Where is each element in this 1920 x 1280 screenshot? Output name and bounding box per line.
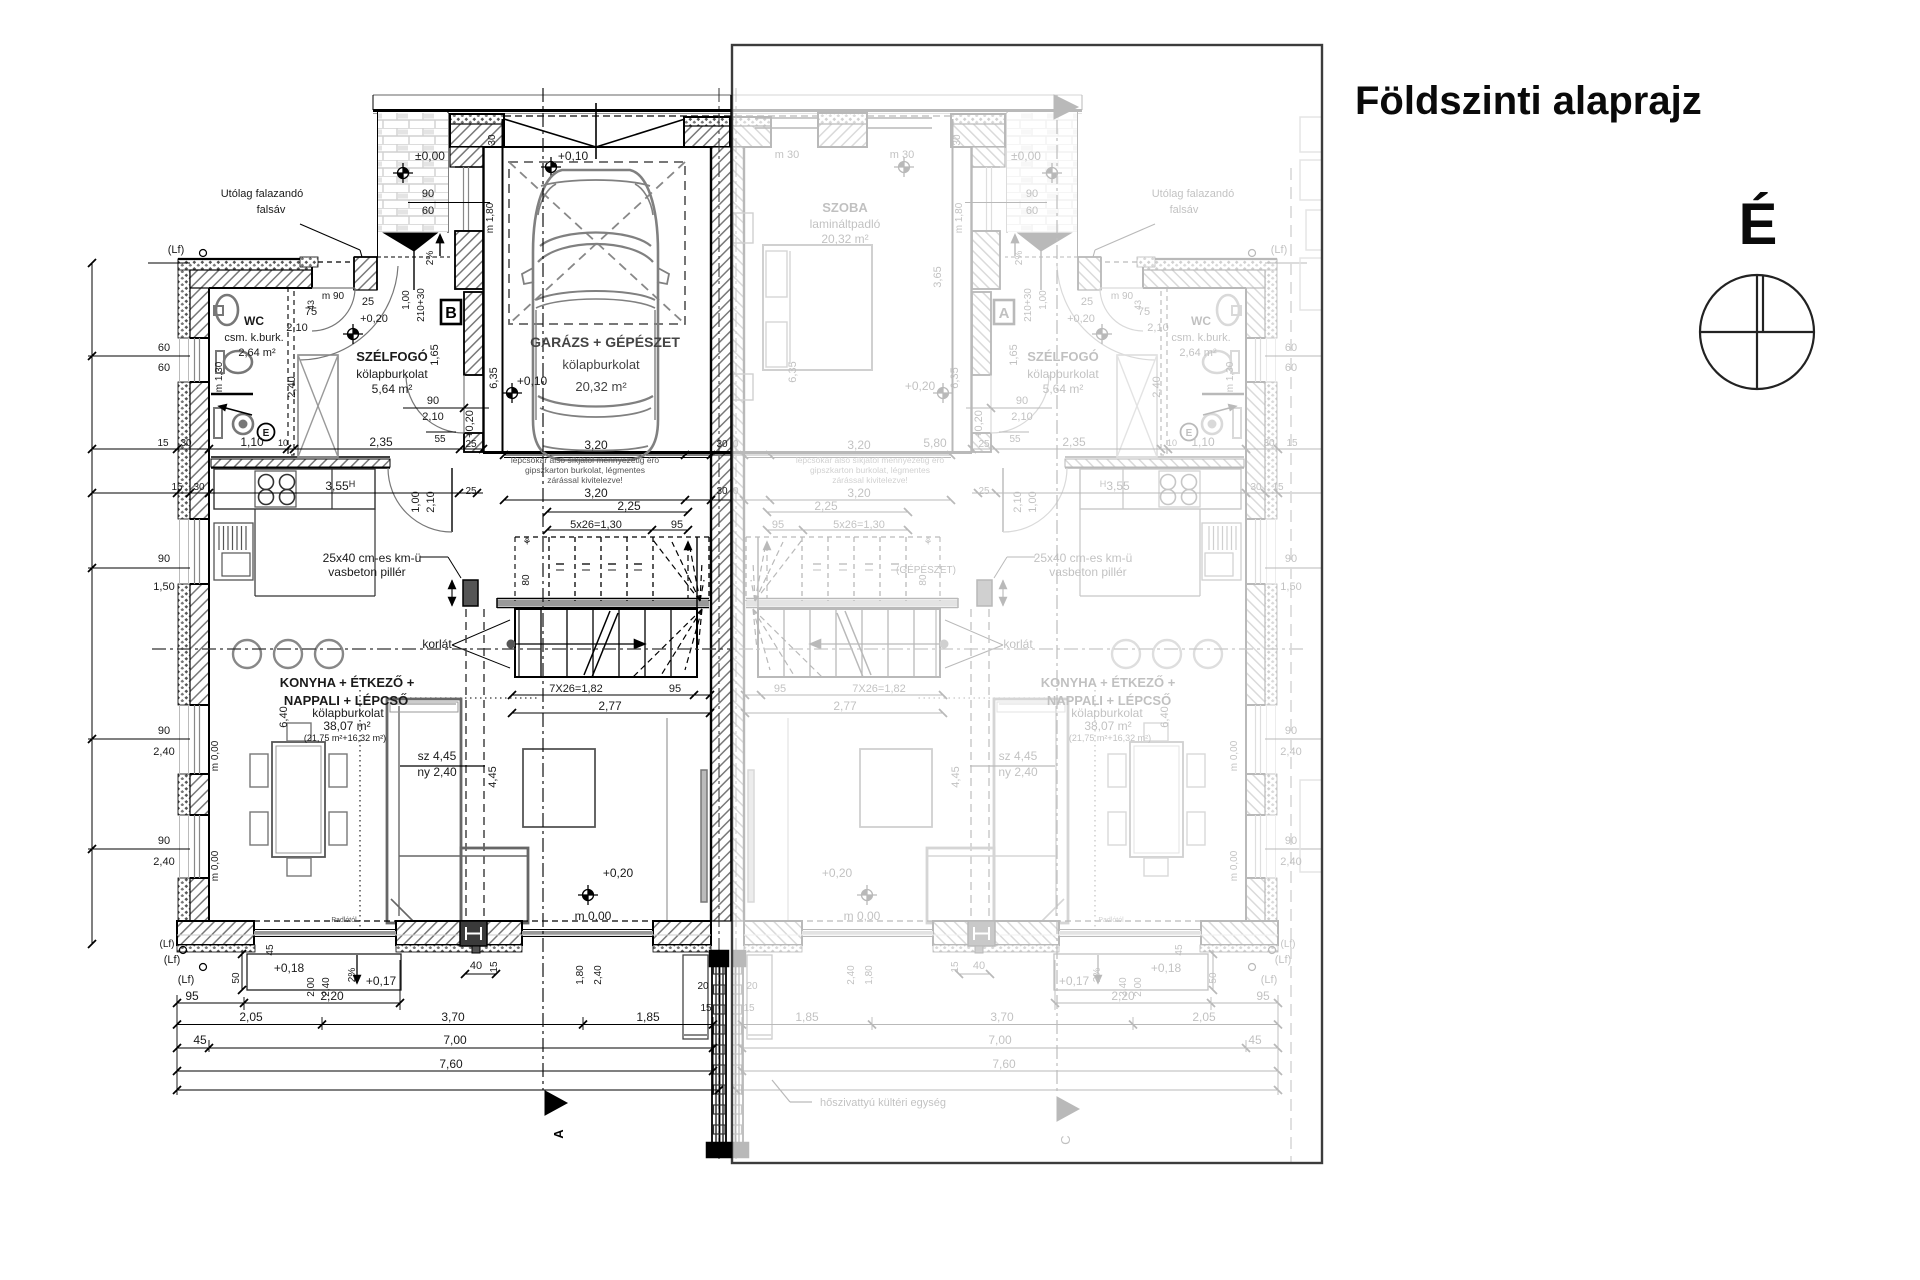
svg-text:+0,20: +0,20: [973, 410, 985, 438]
svg-text:Utólag falazandó: Utólag falazandó: [221, 188, 304, 200]
svg-text:2,40: 2,40: [846, 965, 857, 985]
svg-text:5,80: 5,80: [923, 436, 947, 450]
svg-text:(21,75 m²+16,32 m²): (21,75 m²+16,32 m²): [1069, 733, 1151, 743]
svg-text:zárással kivitelezve!: zárással kivitelezve!: [832, 475, 908, 485]
svg-text:lamináltpadló: lamináltpadló: [810, 217, 881, 231]
svg-text:1,85: 1,85: [795, 1010, 819, 1024]
svg-text:95: 95: [669, 683, 681, 695]
svg-text:1,85: 1,85: [636, 1010, 660, 1024]
svg-text:25: 25: [362, 296, 374, 308]
svg-text:95: 95: [185, 989, 199, 1003]
svg-text:2,05: 2,05: [239, 1010, 263, 1024]
svg-text:m 1,80: m 1,80: [485, 202, 496, 233]
svg-text:2,05: 2,05: [1192, 1010, 1216, 1024]
svg-text:m 30: m 30: [890, 149, 914, 161]
svg-text:43: 43: [306, 300, 316, 310]
svg-text:2,25: 2,25: [814, 499, 838, 513]
svg-text:7,60: 7,60: [439, 1057, 463, 1071]
svg-text:A: A: [999, 305, 1010, 322]
svg-text:30: 30: [180, 438, 192, 449]
svg-text:m 1,80: m 1,80: [954, 202, 965, 233]
svg-text:gipszkarton burkolat, légmente: gipszkarton burkolat, légmentes: [810, 465, 930, 475]
svg-text:5x26=1,30: 5x26=1,30: [833, 519, 885, 531]
svg-text:+0,20: +0,20: [905, 379, 936, 393]
svg-text:+0,18: +0,18: [274, 961, 305, 975]
svg-text:1,00: 1,00: [1038, 290, 1049, 310]
svg-text:45: 45: [1174, 944, 1185, 956]
svg-text:korlát: korlát: [422, 637, 452, 651]
svg-text:90: 90: [427, 395, 439, 407]
svg-text:+0,20: +0,20: [464, 410, 476, 438]
svg-text:+0,18: +0,18: [1151, 961, 1182, 975]
svg-text:(Lf): (Lf): [1261, 974, 1278, 986]
svg-text:kölapburkolat: kölapburkolat: [1027, 367, 1099, 381]
svg-text:25: 25: [465, 439, 477, 450]
svg-text:95: 95: [1256, 989, 1270, 1003]
svg-text:38,07 m²: 38,07 m²: [323, 719, 370, 733]
svg-text:WC: WC: [244, 314, 264, 328]
svg-text:3,65: 3,65: [932, 266, 944, 287]
svg-text:25: 25: [978, 486, 990, 497]
svg-text:2,64 m²: 2,64 m²: [238, 347, 276, 359]
svg-text:210+30: 210+30: [1023, 288, 1034, 322]
svg-text:m 0,00: m 0,00: [1229, 850, 1240, 881]
svg-text:(Lf): (Lf): [164, 954, 181, 966]
svg-text:KONYHA + ÉTKEZŐ +: KONYHA + ÉTKEZŐ +: [1041, 675, 1176, 690]
svg-text:+0,20: +0,20: [1067, 313, 1095, 325]
svg-text:45: 45: [193, 1033, 207, 1047]
svg-text:(21,75 m²+16,32 m²): (21,75 m²+16,32 m²): [304, 733, 386, 743]
svg-text:2,25: 2,25: [617, 499, 641, 513]
svg-text:2,77: 2,77: [598, 699, 622, 713]
svg-text:43: 43: [1133, 300, 1143, 310]
svg-text:Földszinti alaprajz: Földszinti alaprajz: [1355, 79, 1702, 123]
svg-text:csm. k.burk.: csm. k.burk.: [224, 332, 283, 344]
svg-text:7,00: 7,00: [988, 1033, 1012, 1047]
svg-text:kölapburkolat: kölapburkolat: [356, 367, 428, 381]
svg-text:1,00: 1,00: [401, 290, 412, 310]
svg-text:2,00: 2,00: [1133, 977, 1144, 997]
svg-text:6,40: 6,40: [278, 706, 290, 727]
svg-text:30: 30: [716, 439, 728, 450]
svg-text:Padlótól: Padlótól: [1098, 917, 1124, 924]
svg-text:90: 90: [1285, 725, 1297, 737]
svg-text:zárással kivitelezve!: zárással kivitelezve!: [547, 475, 623, 485]
svg-text:15: 15: [489, 961, 500, 973]
svg-text:m 1,30: m 1,30: [1225, 361, 1236, 392]
svg-text:40: 40: [470, 960, 482, 972]
svg-text:2,35: 2,35: [369, 435, 393, 449]
svg-text:(Lf): (Lf): [1281, 939, 1296, 950]
svg-text:1,80: 1,80: [864, 965, 875, 985]
svg-text:sz 4,45: sz 4,45: [418, 749, 457, 763]
svg-text:H: H: [349, 479, 356, 489]
svg-text:45: 45: [265, 944, 276, 956]
svg-text:3,55: 3,55: [1106, 479, 1130, 493]
svg-text:SZÉLFOGÓ: SZÉLFOGÓ: [1027, 349, 1099, 364]
svg-text:2,40: 2,40: [286, 376, 298, 397]
svg-text:2,35: 2,35: [1062, 435, 1086, 449]
svg-text:25: 25: [1081, 296, 1093, 308]
svg-text:2,77: 2,77: [833, 699, 857, 713]
svg-text:30: 30: [193, 482, 205, 493]
svg-text:3,20: 3,20: [847, 486, 871, 500]
svg-text:2,10: 2,10: [1011, 411, 1032, 423]
svg-text:20: 20: [697, 981, 709, 992]
svg-text:2,10: 2,10: [1012, 491, 1024, 512]
svg-text:Padlótól: Padlótól: [331, 917, 357, 924]
svg-text:30: 30: [1263, 438, 1275, 449]
svg-text:lépcsőkar alsó síkjától mennye: lépcsőkar alsó síkjától mennyezetig érő: [511, 455, 660, 465]
svg-text:1,80: 1,80: [575, 965, 586, 985]
svg-text:95: 95: [772, 519, 784, 531]
svg-text:1,10: 1,10: [240, 435, 264, 449]
svg-text:7X26=1,82: 7X26=1,82: [549, 683, 603, 695]
svg-text:2,40: 2,40: [153, 746, 174, 758]
svg-text:10: 10: [278, 438, 288, 448]
svg-text:6,35: 6,35: [787, 361, 799, 382]
svg-text:kölapburkolat: kölapburkolat: [562, 357, 640, 372]
svg-text:1,00: 1,00: [410, 491, 422, 512]
svg-text:10: 10: [1167, 438, 1177, 448]
svg-text:m 0,00: m 0,00: [210, 740, 221, 771]
svg-text:90: 90: [158, 553, 170, 565]
svg-text:3,70: 3,70: [441, 1010, 465, 1024]
svg-text:15: 15: [157, 438, 169, 449]
svg-text:25: 25: [978, 439, 990, 450]
svg-text:E: E: [263, 428, 270, 439]
svg-text:60: 60: [1285, 342, 1297, 354]
svg-text:m 0,00: m 0,00: [844, 909, 881, 923]
svg-text:95: 95: [774, 683, 786, 695]
svg-text:55: 55: [1009, 434, 1021, 445]
svg-text:55: 55: [434, 434, 446, 445]
svg-text:38,07 m²: 38,07 m²: [1084, 719, 1131, 733]
svg-text:vasbeton pillér: vasbeton pillér: [1049, 565, 1126, 579]
svg-text:m 30: m 30: [775, 149, 799, 161]
svg-text:25x40 cm-es km-ü: 25x40 cm-es km-ü: [323, 551, 422, 565]
svg-text:2,40: 2,40: [1151, 376, 1163, 397]
svg-text:4,45: 4,45: [487, 766, 499, 787]
svg-text:4,45: 4,45: [950, 766, 962, 787]
svg-text:SZOBA: SZOBA: [822, 200, 868, 215]
svg-text:2,10: 2,10: [422, 411, 443, 423]
svg-text:30: 30: [1250, 482, 1262, 493]
svg-text:15: 15: [700, 1003, 712, 1014]
svg-text:6,35: 6,35: [949, 367, 961, 388]
svg-text:20,32 m²: 20,32 m²: [821, 232, 868, 246]
svg-text:20: 20: [746, 981, 758, 992]
svg-text:m 0,00: m 0,00: [210, 850, 221, 881]
svg-text:30: 30: [487, 134, 498, 146]
svg-text:±0,00: ±0,00: [1011, 149, 1041, 163]
svg-text:80: 80: [521, 574, 532, 586]
svg-text:m 90: m 90: [1111, 291, 1134, 302]
svg-text:15: 15: [171, 482, 183, 493]
svg-text:C: C: [1058, 1135, 1073, 1144]
svg-text:É: É: [1739, 192, 1778, 257]
svg-text:2,40: 2,40: [593, 965, 604, 985]
svg-text:(Lf): (Lf): [1271, 244, 1288, 256]
svg-text:GARÁZS + GÉPÉSZET: GARÁZS + GÉPÉSZET: [530, 334, 680, 350]
svg-text:lépcsőkar alsó síkjától mennye: lépcsőkar alsó síkjától mennyezetig érő: [796, 455, 945, 465]
svg-text:90: 90: [1026, 188, 1038, 200]
svg-text:90: 90: [1016, 395, 1028, 407]
svg-text:2%: 2%: [1092, 968, 1103, 983]
svg-text:m 90: m 90: [322, 291, 345, 302]
svg-text:(Lf): (Lf): [160, 939, 175, 950]
svg-text:210+30: 210+30: [416, 288, 427, 322]
svg-text:15: 15: [1272, 482, 1284, 493]
svg-text:±0,00: ±0,00: [415, 149, 445, 163]
svg-text:1,00: 1,00: [1027, 491, 1039, 512]
svg-text:A: A: [551, 1129, 566, 1139]
svg-text:kölapburkolat: kölapburkolat: [1071, 706, 1143, 720]
svg-text:+0,10: +0,10: [517, 374, 548, 388]
svg-text:2,40: 2,40: [321, 977, 332, 997]
svg-text:40: 40: [973, 960, 985, 972]
svg-text:25x40 cm-es km-ü: 25x40 cm-es km-ü: [1034, 551, 1133, 565]
svg-text:2%: 2%: [1014, 251, 1025, 266]
svg-text:50: 50: [1208, 972, 1219, 984]
svg-text:6,40: 6,40: [1159, 706, 1171, 727]
svg-text:ny 2,40: ny 2,40: [998, 765, 1038, 779]
svg-text:m 0,00: m 0,00: [575, 909, 612, 923]
svg-text:45: 45: [1248, 1033, 1262, 1047]
svg-text:H: H: [1100, 479, 1107, 489]
svg-text:30: 30: [952, 134, 963, 146]
svg-text:hőszivattyú kültéri egység: hőszivattyú kültéri egység: [820, 1097, 946, 1109]
svg-text:60: 60: [158, 362, 170, 374]
svg-text:1,50: 1,50: [153, 581, 174, 593]
svg-text:5,64 m²: 5,64 m²: [1043, 382, 1084, 396]
svg-text:60: 60: [1285, 362, 1297, 374]
svg-text:7,00: 7,00: [443, 1033, 467, 1047]
svg-text:25: 25: [465, 486, 477, 497]
svg-text:2,10: 2,10: [1147, 322, 1168, 334]
svg-text:+0,10: +0,10: [558, 149, 589, 163]
svg-text:ny 2,40: ny 2,40: [417, 765, 457, 779]
svg-text:7X26=1,82: 7X26=1,82: [852, 683, 906, 695]
svg-text:3,20: 3,20: [847, 438, 871, 452]
svg-text:+0,20: +0,20: [603, 866, 634, 880]
svg-text:60: 60: [422, 205, 434, 217]
svg-text:2,00: 2,00: [306, 977, 317, 997]
svg-text:90: 90: [1285, 835, 1297, 847]
svg-text:(Lf): (Lf): [178, 974, 195, 986]
svg-text:60: 60: [1026, 205, 1038, 217]
svg-text:95: 95: [671, 519, 683, 531]
svg-text:2,10: 2,10: [286, 322, 307, 334]
svg-text:1,50: 1,50: [1280, 581, 1301, 593]
svg-text:1,10: 1,10: [1191, 435, 1215, 449]
svg-text:1,65: 1,65: [429, 344, 441, 365]
svg-text:sz 4,45: sz 4,45: [999, 749, 1038, 763]
svg-text:15: 15: [743, 1003, 755, 1014]
svg-text:2,40: 2,40: [1280, 856, 1301, 868]
svg-text:WC: WC: [1191, 314, 1211, 328]
svg-text:B: B: [445, 305, 457, 322]
svg-text:5x26=1,30: 5x26=1,30: [570, 519, 622, 531]
svg-text:(Lf): (Lf): [168, 244, 185, 256]
svg-text:gipszkarton burkolat, légmente: gipszkarton burkolat, légmentes: [525, 465, 645, 475]
svg-text:7,60: 7,60: [992, 1057, 1016, 1071]
svg-text:3,20: 3,20: [584, 438, 608, 452]
svg-text:60: 60: [158, 342, 170, 354]
svg-text:90: 90: [422, 188, 434, 200]
svg-text:falsáv: falsáv: [257, 204, 286, 216]
svg-text:30: 30: [716, 486, 728, 497]
svg-text:90: 90: [1285, 553, 1297, 565]
svg-text:15: 15: [950, 961, 961, 973]
svg-text:3,55: 3,55: [325, 479, 349, 493]
svg-text:2,40: 2,40: [153, 856, 174, 868]
svg-text:3,70: 3,70: [990, 1010, 1014, 1024]
svg-text:5,64 m²: 5,64 m²: [372, 382, 413, 396]
svg-text:m 0,00: m 0,00: [1229, 740, 1240, 771]
svg-text:⚘: ⚘: [924, 537, 933, 548]
svg-text:korlát: korlát: [1003, 637, 1033, 651]
svg-text:m 1,30: m 1,30: [214, 361, 225, 392]
svg-text:90: 90: [158, 725, 170, 737]
svg-text:SZÉLFOGÓ: SZÉLFOGÓ: [356, 349, 428, 364]
svg-text:+0,20: +0,20: [822, 866, 853, 880]
svg-text:2,40: 2,40: [1118, 977, 1129, 997]
svg-text:kölapburkolat: kölapburkolat: [312, 706, 384, 720]
svg-text:2,64 m²: 2,64 m²: [1179, 347, 1217, 359]
svg-text:2,10: 2,10: [425, 491, 437, 512]
svg-text:2,40: 2,40: [1280, 746, 1301, 758]
svg-text:20,32 m²: 20,32 m²: [575, 379, 627, 394]
svg-text:+0,17: +0,17: [1059, 974, 1090, 988]
svg-text:(GÉPÉSZET): (GÉPÉSZET): [896, 563, 956, 576]
svg-text:50: 50: [231, 972, 242, 984]
svg-text:15: 15: [1286, 438, 1298, 449]
svg-text:KONYHA + ÉTKEZŐ +: KONYHA + ÉTKEZŐ +: [280, 675, 415, 690]
svg-text:⚘: ⚘: [523, 537, 532, 548]
svg-text:1,65: 1,65: [1008, 344, 1020, 365]
svg-text:6,35: 6,35: [488, 367, 500, 388]
svg-text:2%: 2%: [347, 968, 358, 983]
svg-text:falsáv: falsáv: [1170, 204, 1199, 216]
svg-text:vasbeton pillér: vasbeton pillér: [328, 565, 405, 579]
svg-text:(Lf): (Lf): [1275, 954, 1292, 966]
svg-text:+0,20: +0,20: [360, 313, 388, 325]
svg-text:csm. k.burk.: csm. k.burk.: [1171, 332, 1230, 344]
svg-text:2%: 2%: [425, 251, 436, 266]
svg-text:90: 90: [158, 835, 170, 847]
svg-text:+0,17: +0,17: [366, 974, 397, 988]
svg-text:3,20: 3,20: [584, 486, 608, 500]
svg-text:Utólag falazandó: Utólag falazandó: [1152, 188, 1235, 200]
